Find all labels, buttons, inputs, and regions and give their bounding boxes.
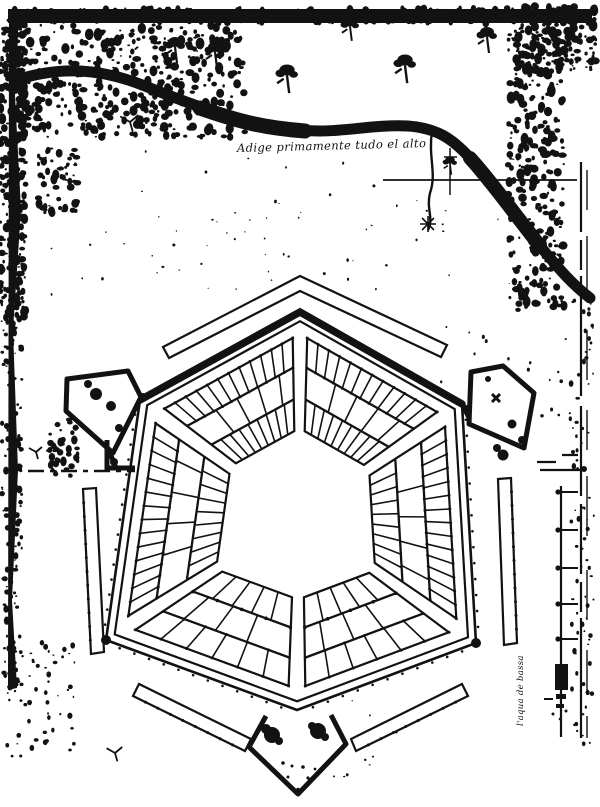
outer-rampart-left	[82, 488, 104, 654]
historic-fortress-map: Adige primamente tudo el alto l'aqua de …	[0, 0, 600, 807]
tree-icon	[275, 65, 298, 94]
tree-icon	[393, 55, 416, 84]
star-icon	[420, 216, 436, 232]
survey-line-east	[537, 455, 586, 470]
bastion-south	[249, 715, 346, 794]
scale-bar	[544, 486, 578, 737]
fortress-plan	[28, 276, 587, 794]
scanned-map-page: Adige primamente tudo el alto l'aqua de …	[0, 0, 600, 807]
tree-icon	[477, 27, 498, 53]
bird-icon	[107, 747, 123, 761]
bird-icon	[29, 447, 42, 459]
river-label: Adige primamente tudo el alto	[236, 136, 427, 155]
water-note-label: l'aqua de bassa	[516, 655, 526, 726]
outer-rampart-bottom-right	[351, 684, 468, 751]
outer-rampart-bottom-left	[133, 684, 251, 751]
outer-rampart-right	[498, 478, 518, 645]
